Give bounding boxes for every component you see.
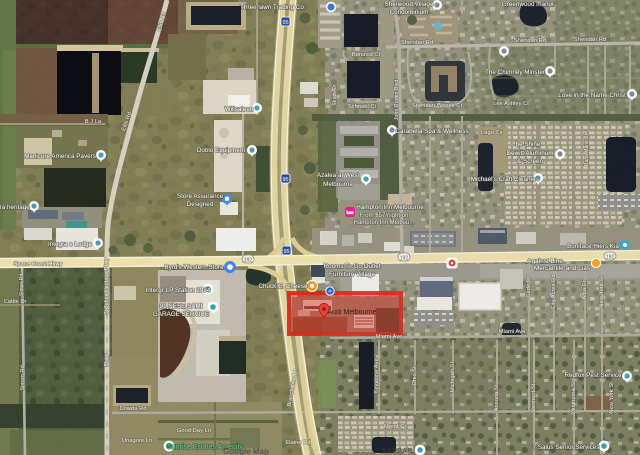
- svg-text:New York St: New York St: [599, 276, 605, 308]
- svg-text:Audi Melbourne: Audi Melbourne: [327, 309, 376, 316]
- svg-text:Melbourne: Melbourne: [323, 181, 353, 188]
- svg-text:Intergr LP Station 2934: Intergr LP Station 2934: [146, 287, 211, 294]
- svg-text:Simon Rd: Simon Rd: [19, 274, 25, 296]
- svg-text:Store Assurance: Store Assurance: [177, 193, 224, 200]
- svg-text:Dana Marie Ct: Dana Marie Ct: [584, 133, 590, 166]
- svg-text:City Acres Rd: City Acres Rd: [551, 274, 557, 309]
- svg-text:Vermont St: Vermont St: [531, 383, 537, 412]
- svg-text:Good Day Ln: Good Day Ln: [177, 428, 211, 434]
- svg-text:Lago Cir: Lago Cir: [481, 130, 503, 136]
- svg-text:Ohio St: Ohio St: [412, 366, 418, 386]
- svg-text:Arizona St: Arizona St: [494, 384, 500, 411]
- svg-text:Alba Dr: Alba Dr: [582, 280, 588, 299]
- svg-text:Michigan St: Michigan St: [450, 361, 456, 392]
- svg-text:Manicure America Pavers: Manicure America Pavers: [24, 153, 96, 160]
- svg-text:Three lawn Trading Co: Three lawn Trading Co: [240, 4, 304, 11]
- svg-text:Designed: Designed: [187, 201, 214, 208]
- svg-text:Dowda Rd: Dowda Rd: [119, 406, 146, 412]
- svg-text:Rooms To Go Outlet: Rooms To Go Outlet: [324, 263, 381, 270]
- svg-text:Boniface Hiers Kia: Boniface Hiers Kia: [567, 243, 619, 250]
- svg-text:GARBAR: GARBAR: [382, 448, 413, 455]
- svg-text:Miami Ave: Miami Ave: [376, 334, 403, 340]
- svg-text:192: 192: [244, 258, 253, 264]
- svg-text:Miami Ave: Miami Ave: [499, 329, 526, 335]
- svg-text:St Johns Heritage Pkwy: St Johns Heritage Pkwy: [104, 257, 110, 315]
- svg-text:Elaine Rd: Elaine Rd: [285, 440, 310, 446]
- svg-text:Google Map: Google Map: [223, 447, 269, 455]
- svg-text:Schnabl Ct: Schnabl Ct: [348, 104, 377, 110]
- svg-text:Space Coast Hkwy: Space Coast Hkwy: [14, 262, 63, 268]
- svg-text:Pkwy: Pkwy: [104, 353, 110, 366]
- svg-text:Lee Ashley Ct: Lee Ashley Ct: [493, 101, 529, 107]
- svg-text:New York St: New York St: [609, 382, 615, 414]
- svg-text:Furniture Village: Furniture Village: [329, 271, 375, 278]
- svg-text:Mercantile and Gas: Mercantile and Gas: [534, 265, 591, 272]
- svg-text:Integra e Lodge: Integra e Lodge: [48, 241, 93, 248]
- svg-text:Sheridan Rd: Sheridan Rd: [514, 38, 546, 44]
- svg-text:Condominium: Condominium: [390, 9, 429, 16]
- svg-text:Cede Dr: Cede Dr: [526, 276, 532, 298]
- svg-text:The Chimney Minster: The Chimney Minster: [485, 69, 545, 76]
- svg-text:Chuck E. Cheese: Chuck E. Cheese: [258, 283, 307, 290]
- svg-text:95: 95: [282, 177, 288, 183]
- svg-text:192: 192: [400, 256, 409, 262]
- svg-text:Sheridan Rd: Sheridan Rd: [401, 40, 433, 46]
- svg-text:95: 95: [283, 249, 289, 255]
- svg-text:Unagore Ln: Unagore Ln: [122, 438, 152, 444]
- svg-text:be Shine: be Shine: [516, 141, 541, 148]
- svg-text:192: 192: [606, 255, 615, 261]
- svg-text:Doblo Equipment: Doblo Equipment: [197, 147, 246, 154]
- svg-text:GARAGE SERVICE: GARAGE SERVICE: [153, 311, 209, 318]
- svg-text:Sheridan Woods Ct: Sheridan Woods Ct: [412, 103, 463, 109]
- svg-text:Sherwood Village: Sherwood Village: [385, 1, 434, 8]
- svg-text:John Rodes Blvd: John Rodes Blvd: [394, 80, 400, 121]
- svg-text:Against Line: Against Line: [527, 258, 563, 265]
- svg-text:From $57/night on: From $57/night on: [360, 213, 409, 219]
- svg-text:Willsaleen: Willsaleen: [225, 106, 254, 113]
- svg-text:95: 95: [282, 20, 288, 26]
- svg-text:Love in the Name Christ: Love in the Name Christ: [558, 92, 626, 99]
- svg-text:Azalea at West: Azalea at West: [317, 172, 359, 179]
- svg-text:Hampton Inn Melbourne: Hampton Inn Melbourne: [356, 204, 424, 211]
- svg-text:Keystone Ave: Keystone Ave: [374, 358, 380, 393]
- svg-text:B J La: B J La: [85, 119, 102, 125]
- svg-text:7 Salus Senior Services: 7 Salus Senior Services: [533, 444, 600, 451]
- svg-text:Carabella Spa & Wellness: Carabella Spa & Wellness: [395, 128, 468, 135]
- svg-text:Sheridan Rd: Sheridan Rd: [574, 37, 606, 43]
- svg-text:Simon Rd: Simon Rd: [20, 365, 26, 390]
- svg-text:Bonavid Ct: Bonavid Ct: [352, 52, 381, 58]
- svg-text:Dewitt Aluminum: Dewitt Aluminum: [507, 150, 554, 157]
- svg-text:Cattle Dr: Cattle Dr: [4, 299, 27, 305]
- svg-text:Byrd's Western Store: Byrd's Western Store: [164, 264, 224, 271]
- svg-text:Redfox Pest Service: Redfox Pest Service: [564, 372, 622, 379]
- svg-text:Stradv Dr: Stradv Dr: [332, 84, 338, 105]
- svg-text:Oklahoma St: Oklahoma St: [571, 381, 577, 415]
- svg-text:era heritage: era heritage: [0, 204, 30, 211]
- svg-text:Mend Ct: Mend Ct: [384, 424, 406, 430]
- svg-text:Greenwood manor: Greenwood manor: [502, 1, 554, 8]
- svg-text:Michael's Craft Cleaners: Michael's Craft Cleaners: [471, 176, 539, 183]
- svg-text:Hampton Inn Melbou...: Hampton Inn Melbou...: [354, 220, 415, 226]
- svg-text:91 NESE SAMI: 91 NESE SAMI: [159, 303, 202, 310]
- svg-text:& Screen: & Screen: [517, 158, 543, 165]
